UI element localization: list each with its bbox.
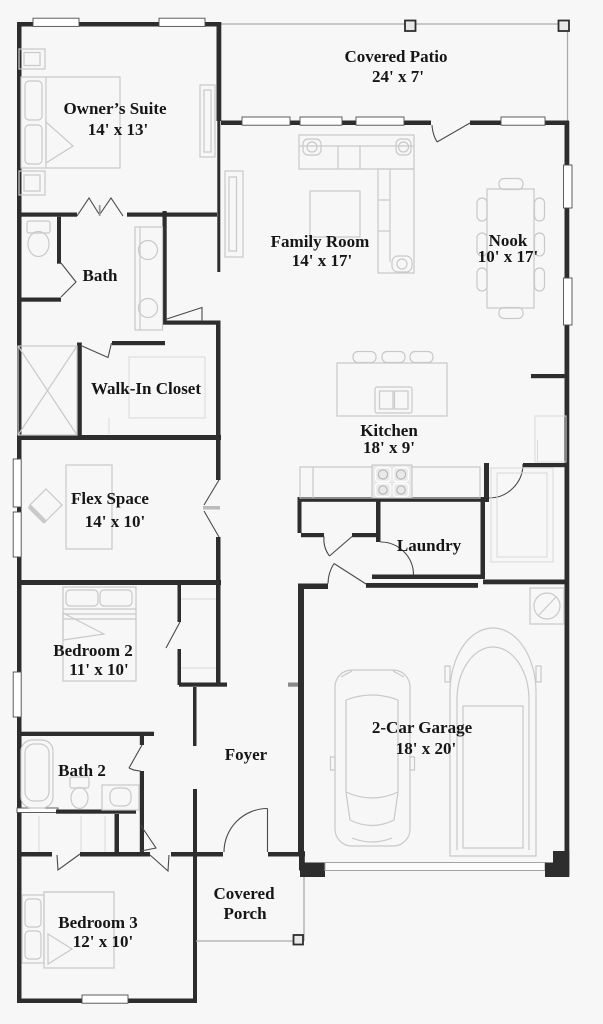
- svg-text:Laundry: Laundry: [397, 536, 462, 555]
- svg-text:10' x 17': 10' x 17': [478, 247, 538, 266]
- svg-text:Porch: Porch: [223, 904, 267, 923]
- svg-text:Bedroom 3: Bedroom 3: [58, 913, 138, 932]
- svg-text:18' x 9': 18' x 9': [363, 438, 415, 457]
- svg-text:Covered: Covered: [213, 884, 275, 903]
- svg-text:11' x 10': 11' x 10': [69, 660, 129, 679]
- svg-text:2-Car Garage: 2-Car Garage: [372, 718, 473, 737]
- svg-text:24' x 7': 24' x 7': [372, 67, 424, 86]
- svg-text:Flex Space: Flex Space: [71, 489, 149, 508]
- svg-text:18' x 20': 18' x 20': [396, 739, 456, 758]
- svg-text:Bath 2: Bath 2: [58, 761, 106, 780]
- svg-text:Walk-In Closet: Walk-In Closet: [91, 379, 201, 398]
- svg-text:Bath: Bath: [83, 266, 119, 285]
- svg-text:12' x 10': 12' x 10': [73, 932, 133, 951]
- svg-text:Covered Patio: Covered Patio: [344, 47, 447, 66]
- svg-text:Foyer: Foyer: [225, 745, 268, 764]
- svg-text:14' x 10': 14' x 10': [85, 512, 145, 531]
- svg-text:Bedroom 2: Bedroom 2: [53, 641, 133, 660]
- svg-text:14' x 17': 14' x 17': [292, 251, 352, 270]
- svg-text:Owner’s Suite: Owner’s Suite: [63, 99, 167, 118]
- svg-text:Family Room: Family Room: [271, 232, 370, 251]
- svg-text:14' x 13': 14' x 13': [88, 120, 148, 139]
